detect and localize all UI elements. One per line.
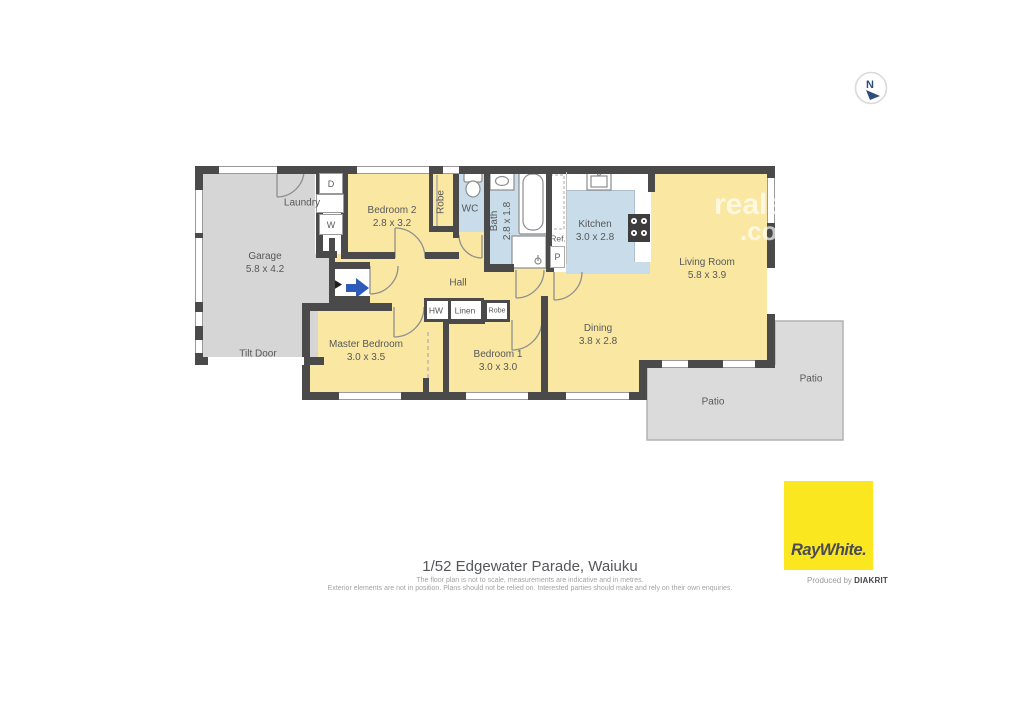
room-name: Dining [579,322,617,335]
window [662,360,688,368]
bedroom2-door-arc [395,228,425,258]
wall [443,317,449,400]
shower-icon [512,236,546,268]
raywhite-logo: RayWhite. [784,481,873,570]
wall [448,298,451,322]
kitchen-label: Kitchen 3.0 x 2.8 [576,218,614,244]
room-dims: 2.8 x 3.2 [368,217,417,230]
bedroom1-door-arc [512,320,542,350]
window [357,166,429,174]
tilt-door-label: Tilt Door [239,348,276,361]
wall [429,172,433,228]
disclaimer-line2: Exterior elements are not in position. P… [180,585,880,592]
kitchen-door-arc [554,272,582,300]
washer-box: W [319,214,343,235]
master-bedroom-label: Master Bedroom 3.0 x 3.5 [329,338,403,364]
wall [541,296,548,400]
room-name: Garage [246,250,284,263]
cooktop-icon [628,214,650,242]
wall [316,251,337,258]
kitchen-edge-line [566,172,567,264]
raywhite-logo-text: RayWhite. [791,541,866,560]
bedroom2-robe-label: Robe [435,190,448,214]
fridge-label: Ref. [550,233,566,244]
room-dims: 2.8 x 1.8 [501,202,514,240]
room-name: Master Bedroom [329,338,403,351]
room-name: Bedroom 1 [474,348,523,361]
bedroom2-label: Bedroom 2 2.8 x 3.2 [368,204,417,230]
dryer-box: D [319,173,343,194]
entry-arrow-icon [346,278,369,298]
wall [648,166,655,192]
bedroom1-robe-label: Robe [489,306,506,315]
room-name: Living Room [679,256,735,269]
window [195,312,203,326]
sliding-door-opening [767,268,775,314]
produced-by-prefix: Produced by [807,576,852,585]
front-entry-door-arc [370,266,398,294]
wall [484,264,514,272]
patio-right-label: Patio [800,373,823,386]
wc-label: WC [462,203,479,216]
wc-door-arc [459,235,482,258]
room-name: Bedroom 2 [368,204,417,217]
garage-label: Garage 5.8 x 4.2 [246,250,284,276]
window [566,392,629,400]
bathtub-icon [519,170,547,234]
wall [333,262,370,269]
room-dims: 3.0 x 3.5 [329,351,403,364]
pantry-box: P [550,246,565,268]
room-name: Kitchen [576,218,614,231]
window [767,178,775,223]
produced-by-line: Produced by DIAKRIT [740,576,888,585]
room-dims: 5.8 x 4.2 [246,263,284,276]
room-dims: 3.0 x 2.8 [576,231,614,244]
wall [302,303,392,311]
wall [453,166,459,238]
room-name: Bath [488,202,501,240]
window [195,190,203,233]
window [195,238,203,302]
patio-lower-label: Patio [702,396,725,409]
pantry-label: P [554,252,560,262]
fridge-space-dashed [550,175,564,229]
window [723,360,755,368]
laundry-tub-box [316,194,344,213]
window [195,340,203,353]
wall [453,232,459,238]
compass-north-label: N [866,79,874,91]
bath-label: Bath 2.8 x 1.8 [488,202,514,240]
floor-plan-page: D W P Garage 5.8 x 4.2 Laundry Tilt Door… [0,0,1024,724]
wall [423,378,429,400]
vanity-sink-icon [490,172,514,190]
garage-laundry-door-arc [277,170,304,197]
wall [302,303,310,400]
bedroom1-label: Bedroom 1 3.0 x 3.0 [474,348,523,374]
window [466,392,528,400]
window [339,392,401,400]
laundry-label: Laundry [284,197,320,210]
hall-label: Hall [449,277,466,290]
dryer-label: D [328,179,335,189]
room-dims: 3.0 x 3.0 [474,361,523,374]
bath-door-arc [516,270,544,298]
property-address: 1/52 Edgewater Parade, Waiuku [230,558,830,575]
window [219,166,277,174]
wall [425,252,459,259]
window [443,166,459,174]
linen-label: Linen [455,305,476,316]
producer-name: DIAKRIT [854,576,888,585]
master-door-arc [394,307,424,337]
dining-label: Dining 3.8 x 2.8 [579,322,617,348]
compass-icon: N [853,70,889,106]
washer-label: W [327,220,336,230]
toilet-icon [464,173,482,197]
wall [341,252,395,259]
room-dims: 5.8 x 3.9 [679,269,735,282]
living-room-label: Living Room 5.8 x 3.9 [679,256,735,282]
hw-label: HW [429,305,443,316]
room-dims: 3.8 x 2.8 [579,335,617,348]
